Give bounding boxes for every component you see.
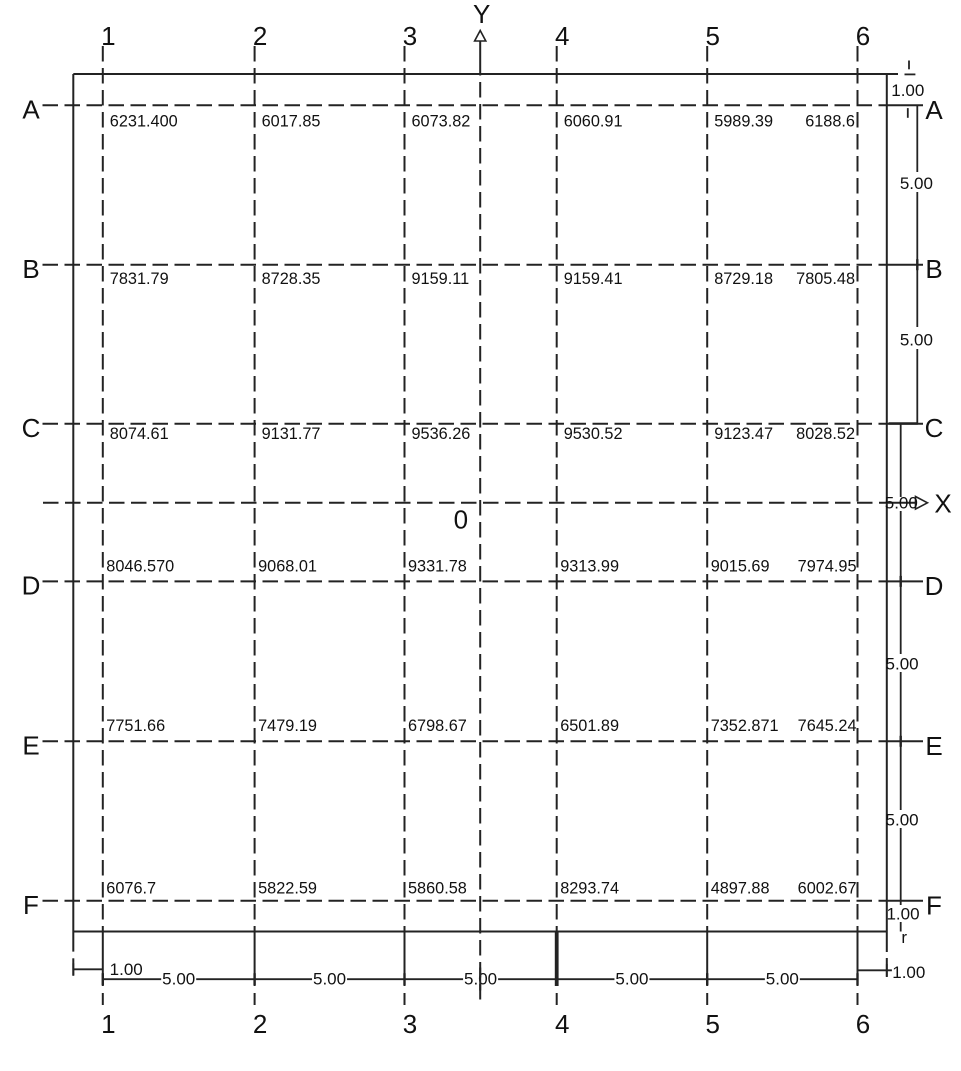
svg-text:B: B [925,254,942,284]
svg-text:1: 1 [101,21,115,51]
svg-text:2: 2 [253,1009,267,1039]
svg-text:7479.19: 7479.19 [258,717,317,735]
svg-text:6073.82: 6073.82 [412,113,471,131]
svg-text:6060.91: 6060.91 [564,113,623,131]
svg-text:B: B [22,254,39,284]
svg-text:9159.41: 9159.41 [564,270,623,288]
svg-text:9015.69: 9015.69 [711,557,770,575]
svg-text:6076.7: 6076.7 [106,879,156,897]
svg-text:5822.59: 5822.59 [258,879,317,897]
svg-text:1.00: 1.00 [886,905,919,924]
svg-text:5.00: 5.00 [615,970,648,989]
svg-text:5: 5 [705,1009,719,1039]
svg-text:6: 6 [856,21,870,51]
svg-text:9123.47: 9123.47 [714,425,773,443]
svg-text:4: 4 [555,21,569,51]
svg-text:9331.78: 9331.78 [408,557,467,575]
svg-text:7974.95: 7974.95 [798,557,857,575]
svg-text:F: F [23,890,39,920]
svg-text:E: E [22,731,39,761]
svg-text:4: 4 [555,1009,569,1039]
svg-text:5.00: 5.00 [313,970,346,989]
svg-text:C: C [22,413,41,443]
svg-text:7645.24: 7645.24 [798,717,857,735]
svg-text:6002.67: 6002.67 [798,879,857,897]
svg-text:5.00: 5.00 [900,174,933,193]
svg-text:9159.11: 9159.11 [412,270,470,288]
svg-text:0: 0 [454,504,468,534]
svg-text:7805.48: 7805.48 [796,270,855,288]
svg-text:1.00: 1.00 [110,960,143,979]
svg-text:C: C [925,413,944,443]
svg-text:1.00: 1.00 [891,81,924,100]
svg-text:5.00: 5.00 [886,811,919,830]
svg-text:3: 3 [403,21,417,51]
svg-text:A: A [925,95,943,125]
svg-text:7352.871: 7352.871 [711,717,779,735]
svg-text:2: 2 [253,21,267,51]
svg-text:X: X [934,488,951,518]
svg-text:1: 1 [101,1009,115,1039]
svg-text:6188.6: 6188.6 [805,113,855,131]
svg-text:9530.52: 9530.52 [564,425,623,443]
svg-text:D: D [22,571,41,601]
svg-text:5.00: 5.00 [766,970,799,989]
svg-text:8293.74: 8293.74 [560,879,619,897]
svg-text:E: E [925,731,942,761]
svg-text:5.00: 5.00 [886,655,919,674]
svg-text:9131.77: 9131.77 [262,425,321,443]
svg-text:5989.39: 5989.39 [714,113,773,131]
svg-text:6501.89: 6501.89 [560,717,619,735]
svg-text:Y: Y [473,0,490,29]
svg-text:7831.79: 7831.79 [110,270,169,288]
svg-text:9536.26: 9536.26 [412,425,471,443]
svg-text:A: A [22,95,40,125]
svg-text:9068.01: 9068.01 [258,557,317,575]
svg-text:D: D [925,571,944,601]
svg-text:6017.85: 6017.85 [262,113,321,131]
svg-text:5.00: 5.00 [900,331,933,350]
svg-text:5.00: 5.00 [885,494,918,513]
svg-text:1.00: 1.00 [892,963,925,982]
svg-text:6231.400: 6231.400 [110,113,178,131]
svg-text:4897.88: 4897.88 [711,879,770,897]
svg-text:3: 3 [403,1009,417,1039]
svg-text:5: 5 [705,21,719,51]
svg-text:F: F [926,890,942,920]
svg-text:8028.52: 8028.52 [796,425,855,443]
svg-text:6798.67: 6798.67 [408,717,467,735]
svg-text:8046.570: 8046.570 [106,557,174,575]
svg-text:8728.35: 8728.35 [262,270,321,288]
svg-text:5860.58: 5860.58 [408,879,467,897]
svg-text:7751.66: 7751.66 [106,717,165,735]
svg-text:9313.99: 9313.99 [560,557,619,575]
svg-text:8729.18: 8729.18 [714,270,773,288]
svg-text:r: r [901,928,907,947]
svg-text:6: 6 [856,1009,870,1039]
svg-text:5.00: 5.00 [162,970,195,989]
svg-text:8074.61: 8074.61 [110,425,169,443]
